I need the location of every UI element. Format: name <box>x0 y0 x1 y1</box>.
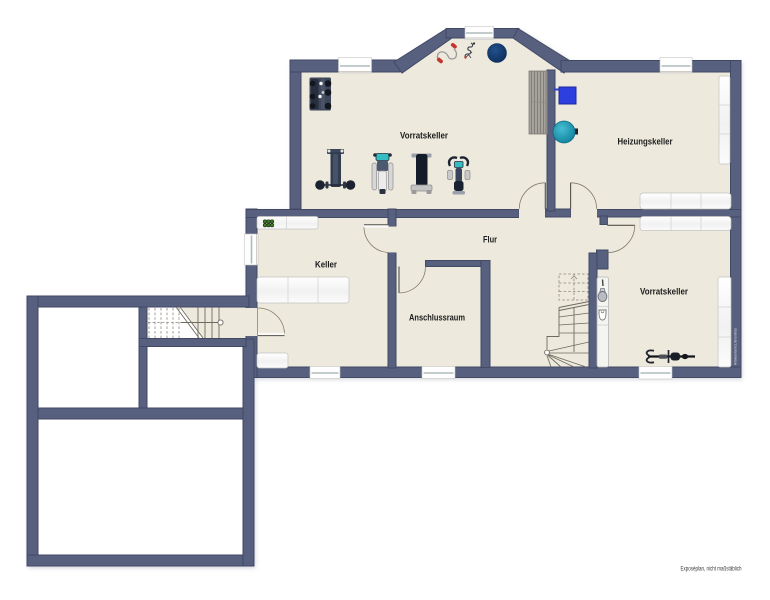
svg-text:Vorratskeller: Vorratskeller <box>640 287 688 298</box>
svg-text:Heizungskeller: Heizungskeller <box>618 137 673 148</box>
svg-text:Flur: Flur <box>483 235 497 246</box>
svg-text:Exposéplan, nicht maßstäblich: Exposéplan, nicht maßstäblich <box>681 566 742 573</box>
svg-text:Vorratskeller: Vorratskeller <box>400 131 448 142</box>
svg-text:Keller: Keller <box>315 260 337 271</box>
svg-text:Anschlussraum: Anschlussraum <box>409 313 465 324</box>
svg-text:Anbieterkennz./Grundriss: Anbieterkennz./Grundriss <box>733 328 737 365</box>
